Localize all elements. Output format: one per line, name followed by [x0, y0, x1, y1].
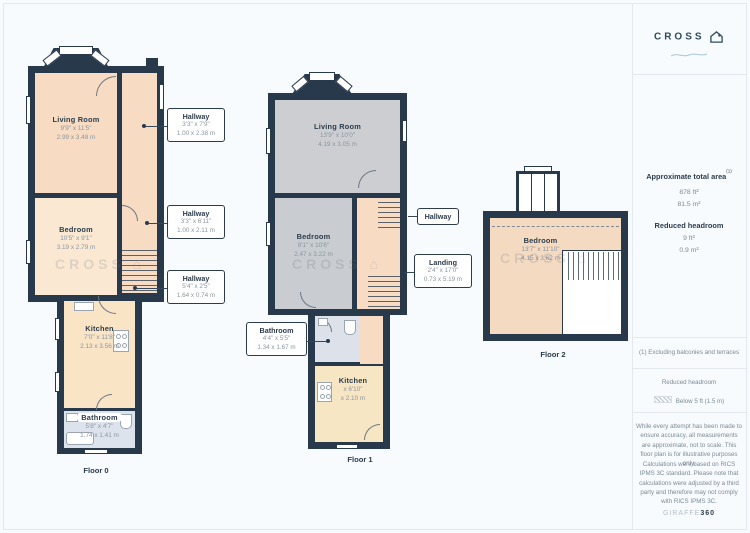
- logo-text: CROSS: [654, 31, 705, 42]
- window: [266, 222, 271, 246]
- stairs: [368, 272, 400, 309]
- callout-hallway: Hallway: [417, 208, 459, 225]
- floorplan-sheet: Living Room 9'9" x 11'5" 2.99 x 3.48 m B…: [0, 0, 750, 533]
- callout-leader: [404, 272, 414, 273]
- window: [266, 128, 271, 154]
- floor-label: Floor 1: [330, 455, 390, 464]
- watermark: CROSS ⌂: [292, 256, 382, 272]
- divider: [633, 412, 746, 413]
- room-label-kitchen: Kitchen 7'0" x 11'8" 2.13 x 3.56 m: [64, 324, 135, 351]
- callout-leader: [145, 126, 167, 127]
- room-label-living: Living Room 9'9" x 11'5" 2.99 x 3.48 m: [35, 115, 117, 142]
- area-m: 81.5 m²: [636, 201, 742, 208]
- legend-title: Reduced headroom: [636, 378, 742, 387]
- window: [84, 449, 108, 454]
- callout-leader: [307, 341, 326, 342]
- reduced-headroom-line: [492, 226, 619, 227]
- watermark: CROSS ⌂: [500, 250, 590, 266]
- window: [55, 372, 60, 392]
- headroom-ft: 9 ft²: [636, 235, 742, 242]
- divider: [633, 368, 746, 369]
- divider: [633, 337, 746, 338]
- callout-hallway: Hallway 5'4" x 2'5" 1.64 x 0.74 m: [167, 270, 225, 304]
- window: [26, 96, 31, 124]
- area-title: Approximate total area: [646, 172, 726, 181]
- callout-leader: [408, 216, 417, 217]
- room-label-kitchen: Kitchen x 6'10" x 2.10 m: [315, 376, 383, 403]
- callout-hallway: Hallway 3'3" x 6'11" 1.00 x 2.11 m: [167, 205, 225, 239]
- disclaimer-2: Calculations were based on RICS IPMS 3C …: [636, 460, 742, 506]
- area-note-ref: (1): [726, 169, 732, 174]
- window: [402, 120, 407, 142]
- footnote: (1) Excluding balconies and terraces: [636, 348, 742, 357]
- legend: Reduced headroom Below 5 ft (1.5 m): [636, 378, 742, 408]
- callout-leader: [148, 223, 167, 224]
- area-ft: 878 ft²: [636, 189, 742, 196]
- agency-logo: CROSS: [636, 28, 742, 64]
- credit-360: 360: [700, 510, 715, 517]
- room-label-living: Living Room 13'9" x 10'0" 4.19 x 3.05 m: [275, 122, 400, 149]
- callout-landing: Landing 2'4" x 17'0" 0.73 x 5.19 m: [414, 254, 472, 288]
- window: [524, 166, 552, 172]
- room-label-bathroom: Bathroom 5'8" x 4'7" 1.74 x 1.41 m: [64, 413, 135, 440]
- callout-bathroom: Bathroom 4'4" x 5'5" 1.34 x 1.67 m: [246, 322, 307, 356]
- floor-label: Floor 0: [56, 466, 136, 475]
- window: [336, 444, 358, 449]
- watermark: CROSS ⌂: [55, 256, 145, 272]
- room-kitchen: [64, 301, 135, 408]
- window: [159, 84, 164, 110]
- callout-leader: [136, 288, 167, 289]
- callout-hallway: Hallway 3'3" x 7'9" 1.00 x 2.38 m: [167, 108, 225, 142]
- headroom-title: Reduced headroom: [636, 221, 742, 230]
- headroom-m: 0.9 m²: [636, 247, 742, 254]
- logo-script: [636, 46, 742, 64]
- stairs: [378, 198, 400, 232]
- window: [26, 240, 31, 264]
- house-icon: [709, 30, 724, 44]
- credit: GIRAFFE360: [636, 502, 742, 520]
- window: [55, 318, 60, 340]
- room-hallway: [360, 316, 383, 364]
- room-label-bedroom: Bedroom 10'5" x 9'1" 3.19 x 2.79 m: [35, 225, 117, 252]
- credit-giraffe: GIRAFFE: [663, 510, 700, 517]
- sink-icon: [318, 318, 328, 326]
- callout-dot: [326, 339, 330, 343]
- toilet-icon: [344, 320, 356, 335]
- sink-icon: [74, 302, 94, 311]
- area-summary: Approximate total area(1) 878 ft² 81.5 m…: [636, 166, 742, 254]
- floor-label: Floor 2: [523, 350, 583, 359]
- hatch-swatch: [654, 396, 672, 403]
- divider: [633, 74, 746, 75]
- dormer: [516, 171, 560, 215]
- legend-label: Below 5 ft (1.5 m): [676, 398, 725, 405]
